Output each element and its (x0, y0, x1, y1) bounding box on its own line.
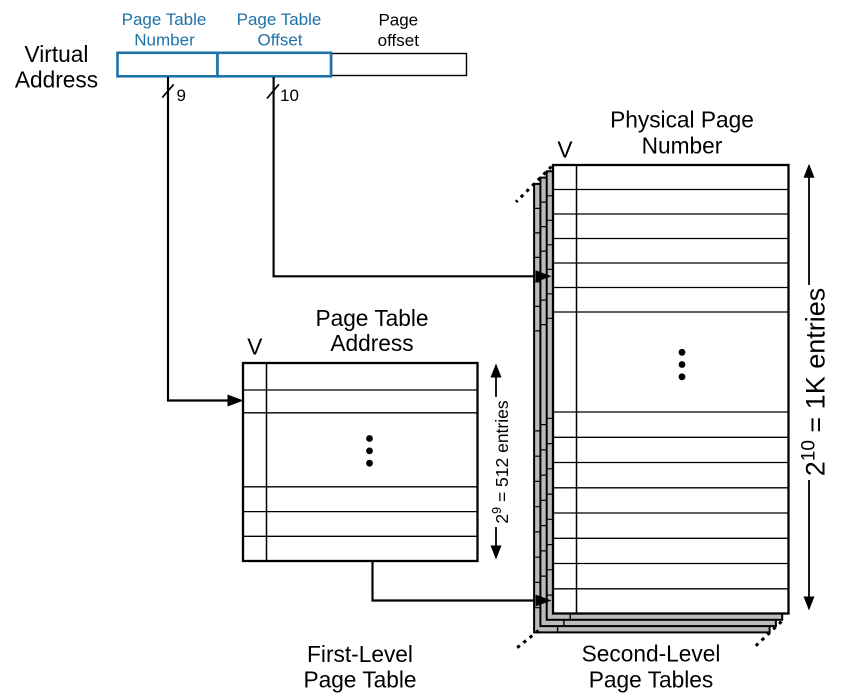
svg-text:Page Tables: Page Tables (589, 667, 713, 693)
svg-text:V: V (557, 137, 573, 163)
svg-text:29 = 512 entries: 29 = 512 entries (490, 400, 512, 523)
svg-text:Page Table: Page Table (122, 10, 207, 29)
svg-text:V: V (247, 334, 263, 360)
svg-text:9: 9 (177, 86, 186, 105)
svg-text:Address: Address (330, 330, 413, 356)
svg-text:10: 10 (280, 86, 299, 105)
svg-text:Physical Page: Physical Page (610, 107, 754, 133)
svg-text:offset: offset (378, 31, 420, 50)
svg-text:Virtual: Virtual (25, 41, 89, 67)
svg-text:Page Table: Page Table (303, 667, 416, 693)
svg-text:Page Table: Page Table (237, 10, 322, 29)
svg-text:Page Table: Page Table (315, 305, 428, 331)
svg-text:Number: Number (134, 30, 195, 49)
svg-text:Page: Page (378, 11, 418, 30)
svg-text:First-Level: First-Level (307, 641, 413, 667)
svg-text:Second-Level: Second-Level (582, 641, 721, 667)
svg-text:Offset: Offset (257, 30, 302, 49)
svg-text:Number: Number (642, 133, 723, 159)
svg-text:Address: Address (15, 67, 98, 93)
